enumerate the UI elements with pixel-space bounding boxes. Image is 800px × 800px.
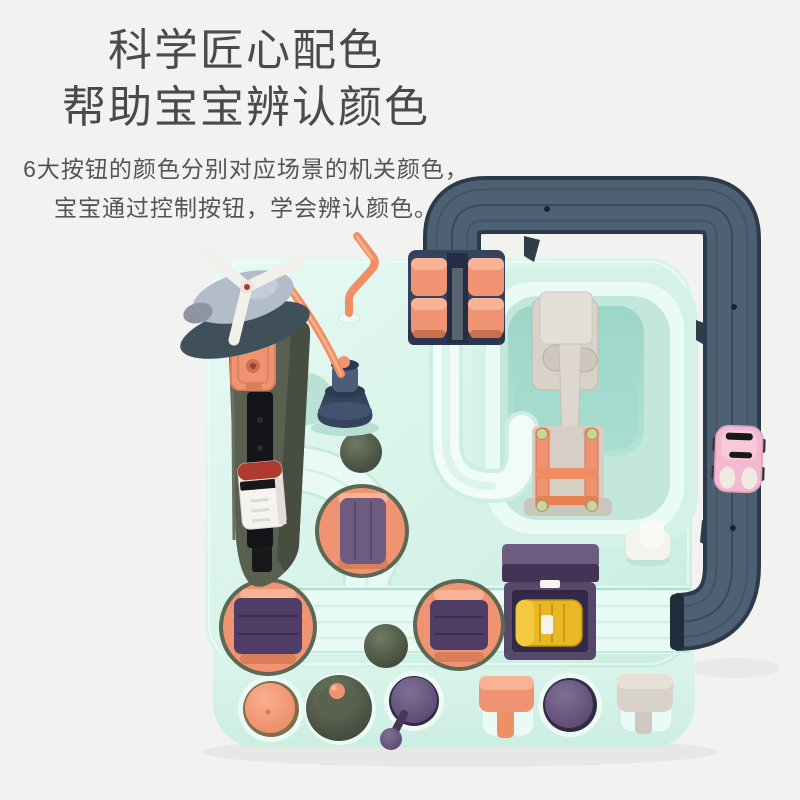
button-dome-salmon xyxy=(238,676,304,742)
pink-car xyxy=(711,425,766,493)
turntable-left xyxy=(219,578,317,676)
turntable-right xyxy=(413,579,505,671)
track-mouth xyxy=(670,594,684,650)
cable-car xyxy=(237,460,287,530)
barrier-gate xyxy=(502,544,599,582)
boat-ramp xyxy=(228,316,310,587)
button-round-purple xyxy=(538,673,602,737)
yellow-car xyxy=(516,600,582,646)
button-lever-orange xyxy=(479,676,534,738)
turntable-top xyxy=(315,484,409,578)
product-photo xyxy=(0,0,800,800)
button-lever-gray xyxy=(617,674,673,734)
button-cone-olive xyxy=(304,673,376,745)
lift-mechanism xyxy=(408,250,505,345)
ball-upper xyxy=(340,431,382,473)
crane-carriage xyxy=(524,426,612,516)
ball-lower xyxy=(364,624,408,668)
